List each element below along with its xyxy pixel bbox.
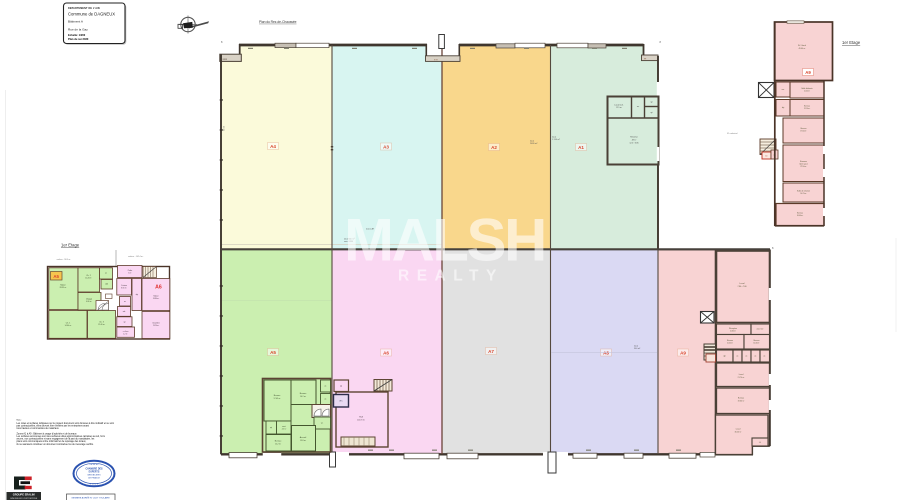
svg-text:Cuisine: Cuisine xyxy=(121,285,127,287)
svg-text:wc: wc xyxy=(764,356,766,358)
svg-text:Réserve: Réserve xyxy=(630,137,638,139)
svg-text:sdb: sdb xyxy=(105,284,108,286)
svg-text:Dégagt: Dégagt xyxy=(86,298,92,301)
svg-text:A2: A2 xyxy=(491,145,497,150)
svg-text:19.60 m²: 19.60 m² xyxy=(738,399,745,402)
svg-text:A4: A4 xyxy=(270,144,276,149)
svg-text:Local: Local xyxy=(739,374,744,376)
svg-text:Bureau: Bureau xyxy=(801,128,807,130)
svg-text:Bureau: Bureau xyxy=(727,340,733,342)
svg-text:Open space: Open space xyxy=(799,164,808,166)
svg-text:wc: wc xyxy=(737,356,739,358)
svg-text:Salle de réunion: Salle de réunion xyxy=(797,191,810,193)
svg-text:Accueil: Accueil xyxy=(300,436,307,439)
svg-text:Réception: Réception xyxy=(729,327,737,330)
svg-text:▪▪ ▪▪: ▪▪ ▪▪ xyxy=(434,59,438,61)
svg-text:Séjour: Séjour xyxy=(153,296,159,298)
svg-text:Echelle: 1/200: Echelle: 1/200 xyxy=(68,33,86,37)
svg-text:2480 m²: 2480 m² xyxy=(530,142,538,145)
svg-text:REALTY: REALTY xyxy=(398,268,504,285)
svg-text:A9: A9 xyxy=(805,70,811,75)
svg-text:A5: A5 xyxy=(270,350,276,355)
svg-text:GROUPE ERALIM: GROUPE ERALIM xyxy=(13,493,35,497)
svg-text:A5: A5 xyxy=(53,274,59,279)
svg-text:Palier: Palier xyxy=(128,270,133,272)
svg-text:Bureau: Bureau xyxy=(275,441,281,443)
svg-text:asc: asc xyxy=(782,89,785,91)
svg-text:30.20 m²: 30.20 m² xyxy=(735,430,742,433)
svg-text:48 m²: 48 m² xyxy=(632,139,637,142)
svg-text:28.35 m²: 28.35 m² xyxy=(60,286,67,289)
svg-text:12.5 × 3.85: 12.5 × 3.85 xyxy=(629,142,638,145)
svg-text:surface : 102.4 m²: surface : 102.4 m² xyxy=(128,255,144,258)
svg-text:Bureau: Bureau xyxy=(274,395,280,397)
svg-text:Salle d'attente: Salle d'attente xyxy=(801,87,812,90)
svg-text:Bâtiment A: Bâtiment A xyxy=(68,20,84,24)
svg-text:12.2 m²: 12.2 m² xyxy=(275,443,281,446)
svg-text:pas contractuelles, elles devr: pas contractuelles, elles devront être v… xyxy=(17,425,90,428)
svg-text:1er Etage: 1er Etage xyxy=(842,40,861,45)
svg-text:1 260 m²: 1 260 m² xyxy=(552,138,560,141)
svg-text:N° cadastral: N° cadastral xyxy=(727,132,738,135)
svg-text:21.70 m²: 21.70 m² xyxy=(738,376,745,379)
svg-text:tous travaux et commandes de m: tous travaux et commandes de matériaux. xyxy=(17,427,60,430)
svg-text:▪▪▪▪: ▪▪▪▪ xyxy=(223,57,227,61)
svg-text:Bureau: Bureau xyxy=(804,106,810,108)
svg-text:Chambre: Chambre xyxy=(152,323,159,325)
svg-text:DE FRANCE: DE FRANCE xyxy=(88,477,100,480)
svg-text:Plan du rez 2020: Plan du rez 2020 xyxy=(68,37,89,41)
svg-text:wc: wc xyxy=(324,399,326,401)
svg-text:IMMOBILIERS: IMMOBILIERS xyxy=(87,475,101,477)
svg-text:Bureaux: Bureaux xyxy=(800,161,807,163)
svg-text:wc: wc xyxy=(105,273,107,275)
svg-text:14.2 m²: 14.2 m² xyxy=(300,395,306,398)
svg-text:wc: wc xyxy=(321,423,323,425)
svg-text:17.45 m²: 17.45 m² xyxy=(273,397,280,400)
svg-text:Plan du Rez-de-Chaussée: Plan du Rez-de-Chaussée xyxy=(259,20,297,24)
svg-text:1er Etage: 1er Etage xyxy=(61,243,80,248)
svg-text:wc: wc xyxy=(637,106,639,108)
svg-text:Nota :: Nota : xyxy=(17,419,23,422)
svg-text:560 m²: 560 m² xyxy=(634,347,641,350)
svg-text:wc: wc xyxy=(324,386,326,388)
svg-text:s. d'eau: s. d'eau xyxy=(123,331,129,333)
svg-text:plans sont communiqués à titre: plans sont communiqués à titre informati… xyxy=(17,440,87,443)
svg-text:A9: A9 xyxy=(680,351,686,356)
svg-text:12.5 m²: 12.5 m² xyxy=(616,106,622,109)
svg-text:wc: wc xyxy=(124,301,126,303)
svg-text:Local: Local xyxy=(736,429,741,431)
svg-text:wc: wc xyxy=(746,356,748,358)
svg-text:A1: A1 xyxy=(578,145,584,150)
svg-text:14.60 m²: 14.60 m² xyxy=(65,324,72,327)
svg-text:49.60 m²: 49.60 m² xyxy=(799,47,806,50)
svg-text:★ 1972 ★: ★ 1972 ★ xyxy=(89,483,98,486)
svg-text:112.70 m²: 112.70 m² xyxy=(357,419,365,422)
svg-text:R+1 local: R+1 local xyxy=(798,45,807,47)
svg-text:EXPERTS: EXPERTS xyxy=(89,472,100,474)
svg-text:wc: wc xyxy=(755,356,757,358)
svg-text:vest.: vest. xyxy=(282,425,286,428)
svg-text:œuvre, non contractuelles et s: œuvre, non contractuelles et sans engage… xyxy=(17,438,96,441)
svg-text:MALSH: MALSH xyxy=(344,207,545,274)
svg-text:7.80 × 7.80: 7.80 × 7.80 xyxy=(737,285,746,288)
svg-text:● ● ● ● ● ●: ● ● ● ● ● ● xyxy=(89,464,98,466)
svg-text:CHAMBRE DES: CHAMBRE DES xyxy=(85,468,103,471)
svg-text:Bureau: Bureau xyxy=(797,213,803,215)
svg-text:Bureau: Bureau xyxy=(738,397,744,400)
svg-text:Local: Local xyxy=(740,283,746,285)
svg-text:surface : 98.5 m²: surface : 98.5 m² xyxy=(57,258,72,261)
svg-text:A6: A6 xyxy=(155,285,162,291)
svg-text:MEMBRE AGRÉÉ N° 2047 TITULAIRE: MEMBRE AGRÉÉ N° 2047 TITULAIRE xyxy=(72,497,111,500)
svg-text:Les cotes et surfaces indiquée: Les cotes et surfaces indiquées sur le p… xyxy=(17,422,115,425)
svg-text:11.20 m²: 11.20 m² xyxy=(85,277,92,280)
svg-text:Commune de DAGNEUX: Commune de DAGNEUX xyxy=(68,12,115,17)
svg-text:Bureau: Bureau xyxy=(300,393,306,395)
svg-text:vest. 5m²: vest. 5m² xyxy=(757,328,764,331)
svg-text:Zones A1 à A9 : Bâtiment à usa: Zones A1 à A9 : Bâtiment à usage d'activ… xyxy=(17,432,78,435)
svg-text:15.8 m²: 15.8 m² xyxy=(300,439,306,442)
svg-text:DEPARTEMENT DE L'AIN: DEPARTEMENT DE L'AIN xyxy=(68,7,100,10)
svg-text:A7: A7 xyxy=(488,349,494,354)
svg-text:A8: A8 xyxy=(603,351,609,356)
svg-text:Bureau: Bureau xyxy=(754,340,760,342)
svg-text:sde: sde xyxy=(123,311,126,313)
svg-text:Hall: Hall xyxy=(359,417,363,419)
svg-text:12.40 m²: 12.40 m² xyxy=(98,323,105,326)
svg-text:A6: A6 xyxy=(383,351,389,356)
svg-text:ils ne sauraient constituer un: ils ne sauraient constituer un document … xyxy=(17,443,94,446)
svg-text:32.00: 32.00 xyxy=(224,125,226,131)
svg-text:Les surfaces annoncées sont de: Les surfaces annoncées sont des surfaces… xyxy=(17,435,106,438)
svg-text:A3: A3 xyxy=(383,145,389,150)
svg-text:Rue de la Gay: Rue de la Gay xyxy=(68,28,88,32)
svg-text:▪▪▪: ▪▪▪ xyxy=(644,59,647,61)
